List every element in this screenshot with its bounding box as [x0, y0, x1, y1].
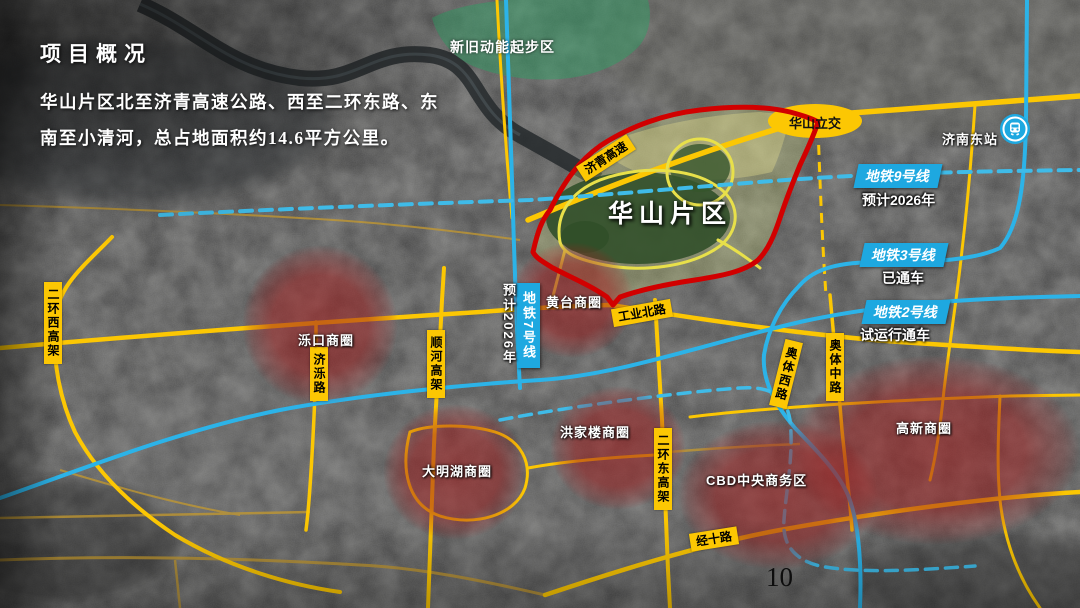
circle-label-daminghu: 大明湖商圈 [422, 461, 492, 480]
circle-label-gaoxin: 高新商圈 [896, 418, 952, 437]
description-line1: 华山片区北至济青高速公路、西至二环东路、东 [40, 90, 510, 114]
circle-label-huangtai: 黄台商圈 [546, 292, 602, 311]
metro2-status: 试运行通车 [860, 325, 930, 345]
road-label-erhuandong: 二环东高架 [654, 428, 672, 510]
metro3-status: 已通车 [882, 268, 924, 288]
road-label-jiluo: 济泺路 [310, 347, 328, 401]
slide: 项目概况 华山片区北至济青高速公路、西至二环东路、东 南至小清河，总占地面积约1… [0, 0, 1080, 608]
road-label-shunhe: 顺河高架 [427, 330, 445, 398]
interchange-label: 华山立交 [768, 113, 862, 132]
metro7-status: 预计2026年 [499, 283, 518, 365]
circle-label-hongjialou: 洪家楼商圈 [560, 422, 630, 441]
metro3-tag: 地铁3号线 [859, 243, 948, 267]
road-label-aotizhong: 奥体中路 [826, 333, 844, 401]
zone-label-qibu: 新旧动能起步区 [450, 37, 555, 57]
metro9-tag: 地铁9号线 [853, 164, 942, 188]
description-line2: 南至小清河，总占地面积约14.6平方公里。 [40, 126, 510, 150]
circle-label-cbd: CBD中央商务区 [706, 470, 807, 489]
metro7-tag: 地铁7号线 [517, 283, 540, 368]
train-station-icon [999, 113, 1031, 145]
metro9-status: 预计2026年 [862, 190, 935, 210]
circle-label-luokou: 泺口商圈 [298, 330, 354, 349]
station-label: 济南东站 [942, 129, 998, 148]
title-block: 项目概况 华山片区北至济青高速公路、西至二环东路、东 南至小清河，总占地面积约1… [40, 38, 510, 150]
page-title: 项目概况 [40, 38, 510, 68]
page-number: 10 [766, 562, 793, 593]
zone-label-huashan: 华山片区 [608, 194, 732, 230]
road-label-erhuanxi: 二环西高架 [44, 282, 62, 364]
metro2-tag: 地铁2号线 [861, 300, 950, 324]
